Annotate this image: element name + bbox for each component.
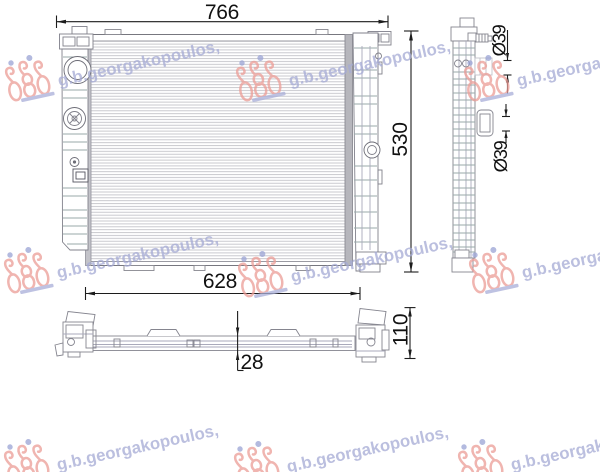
svg-text:110: 110	[390, 314, 413, 347]
svg-text:28: 28	[241, 351, 264, 374]
svg-text:530: 530	[389, 122, 412, 156]
svg-text:Ø39: Ø39	[490, 141, 511, 173]
svg-text:766: 766	[205, 1, 239, 24]
svg-text:628: 628	[203, 270, 237, 293]
svg-text:Ø39: Ø39	[489, 25, 510, 57]
